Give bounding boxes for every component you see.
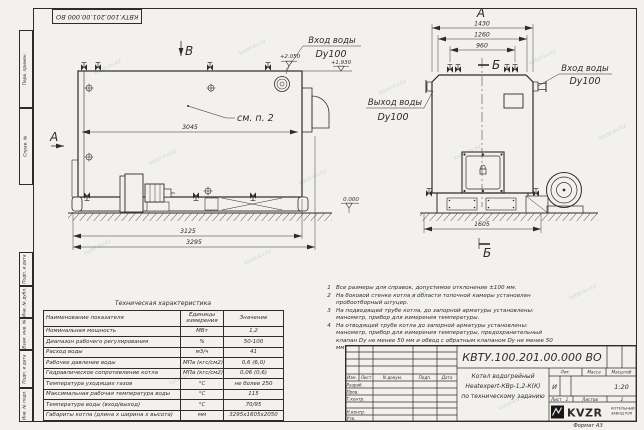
margin-label: Подп. и дата [24,254,28,283]
tech-value: 3295х1605х2050 [224,410,284,421]
note-number: 1 [322,285,336,293]
header-izm: Изм. [347,375,357,380]
product-name-line2: Heatexpert-КВр-1,2-К(К) [465,383,540,390]
tech-table: Наименование показателя Единицы измерени… [43,310,284,421]
header-ndoc: N докум. [383,375,402,380]
tech-col-name: Наименование показателя [44,311,181,327]
header-data: Дата [441,375,453,380]
tech-name: Температура уходящих газов [44,379,181,390]
doc-number: КВТУ.100.201.00.000 ВО [462,351,602,364]
note-item: 2На боковой стенке котла в области топоч… [322,293,560,308]
tech-value: не более 250 [224,379,284,390]
product-name-line1: Котел водогрейный [472,373,535,380]
tech-value: 41 [224,347,284,358]
title-block: КВТУ.100.201.00.000 ВО Котел водогрейный… [345,345,637,422]
margin-cell-vzam-inv: Взам. инв. № [19,318,33,350]
margin-label: Перв. примен. [24,53,28,85]
margin-cell-podp-data-1: Подп. и дата [19,252,33,286]
sheet-value: 1 [566,397,569,402]
tech-name: Диапазон рабочего регулирования [44,337,181,348]
tech-unit: °С [181,389,224,400]
tech-unit: МПа (кгс/см2) [181,368,224,379]
tech-row: Диапазон рабочего регулирования%50-100 [44,337,284,348]
margin-cell-sprav-no: Справ. № [19,108,33,185]
tech-value: 0,6 (6,0) [224,358,284,369]
row-tkontr: Т.контр. [347,397,365,402]
tech-name: Температура воды (вход/выход) [44,400,181,411]
logo-caption-1: КОТЕЛЬНЫЙ [611,406,635,411]
tech-unit: МВт [181,326,224,337]
tech-value: 70/95 [224,400,284,411]
note-item: 1Все размеры для справок, допустимое отк… [322,285,560,293]
tech-unit: м3/ч [181,347,224,358]
tech-name: Рабочее давление воды [44,358,181,369]
tech-name: Расход воды [44,347,181,358]
margin-cell-perv-primen: Перв. примен. [19,30,33,108]
margin-label: Взам. инв. № [24,319,28,348]
note-number: 4 [322,323,336,353]
kvzr-logo-icon [551,406,564,419]
scale-header: Масштаб [612,370,632,375]
tech-col-value: Значение [224,311,284,327]
logo-text: KVZR [567,407,603,420]
tech-header-row: Наименование показателя Единицы измерени… [44,311,284,327]
margin-cell-inv-dubl: Инв. № дубл. [19,286,33,318]
tech-row: Габариты котла (длина х ширина х высота)… [44,410,284,421]
lit-header: Лит. [560,370,571,375]
tech-row: Рабочее давление водыМПа (кгс/см2)0,6 (6… [44,358,284,369]
tech-row: Температура уходящих газов°Сне более 250 [44,379,284,390]
tech-name: Номинальная мощность [44,326,181,337]
tech-value: 50-100 [224,337,284,348]
note-item: 3На подводящей трубе котла, до запорной … [322,308,560,323]
tech-row: Максимальная рабочая температура воды°С1… [44,389,284,400]
lit-value: И [552,383,557,391]
tech-value: 0,06 (0,6) [224,368,284,379]
margin-label: Справ. № [24,136,28,157]
tech-value: 1,2 [224,326,284,337]
note-text: На подводящей трубе котла, до запорной а… [336,308,560,323]
note-number: 3 [322,308,336,323]
notes-list: 1Все размеры для справок, допустимое отк… [322,285,560,353]
mass-header: Масса [587,370,601,375]
row-razrab: Разраб. [347,383,363,388]
margin-label: Инв. № подл. [24,390,28,420]
tech-unit: % [181,337,224,348]
row-nkontr: Н.контр. [347,410,366,415]
tech-characteristics: Техническая характеристика Наименование … [43,300,283,421]
row-utv: Утв. [347,416,356,421]
tech-name: Максимальная рабочая температура воды [44,389,181,400]
note-text: На боковой стенке котла в области топочн… [336,293,560,308]
tech-name: Гидравлическое сопротивление котла [44,368,181,379]
tech-table-title: Техническая характеристика [43,300,283,307]
tech-row: Гидравлическое сопротивление котлаМПа (к… [44,368,284,379]
sheets-value: 2 [621,397,624,402]
note-text: Все размеры для справок, допустимое откл… [336,285,560,293]
product-name-line3: по техническому заданию [461,393,544,400]
tech-unit: °С [181,379,224,390]
tech-unit: мм [181,410,224,421]
sheet-label: Лист [550,397,562,402]
margin-cell-inv-podl: Инв. № подл. [19,388,33,422]
logo-caption-2: ЗАВОД РЭП [611,412,633,416]
header-list: Лист [360,375,372,380]
tech-row: Номинальная мощностьМВт1,2 [44,326,284,337]
margin-label: Инв. № дубл. [24,287,28,316]
tech-row: Температура воды (вход/выход)°С70/95 [44,400,284,411]
tech-col-unit: Единицы измерения [181,311,224,327]
tech-row: Расход водым3/ч41 [44,347,284,358]
note-number: 2 [322,293,336,308]
tech-unit: МПа (кгс/см2) [181,358,224,369]
tech-unit: °С [181,400,224,411]
sheets-label: Листов [581,397,598,402]
drawing-sheet: kotel-kv.kz kotel-kv.kz kotel-kv.kz kote… [0,0,644,430]
top-stamp: КВТУ.100.201.00.000 ВО [52,9,142,24]
scale-value: 1:20 [614,383,629,391]
header-podp: Подп. [419,375,432,380]
margin-cell-podp-data-2: Подп. и дата [19,350,33,388]
row-prov: Пров. [347,390,359,395]
margin-label: Подп. и дата [24,354,28,383]
format-label: Формат А3 [553,423,623,429]
tech-name: Габариты котла (длина х ширина х высота) [44,410,181,421]
top-stamp-text: КВТУ.100.201.00.000 ВО [56,13,138,21]
tech-value: 115 [224,389,284,400]
